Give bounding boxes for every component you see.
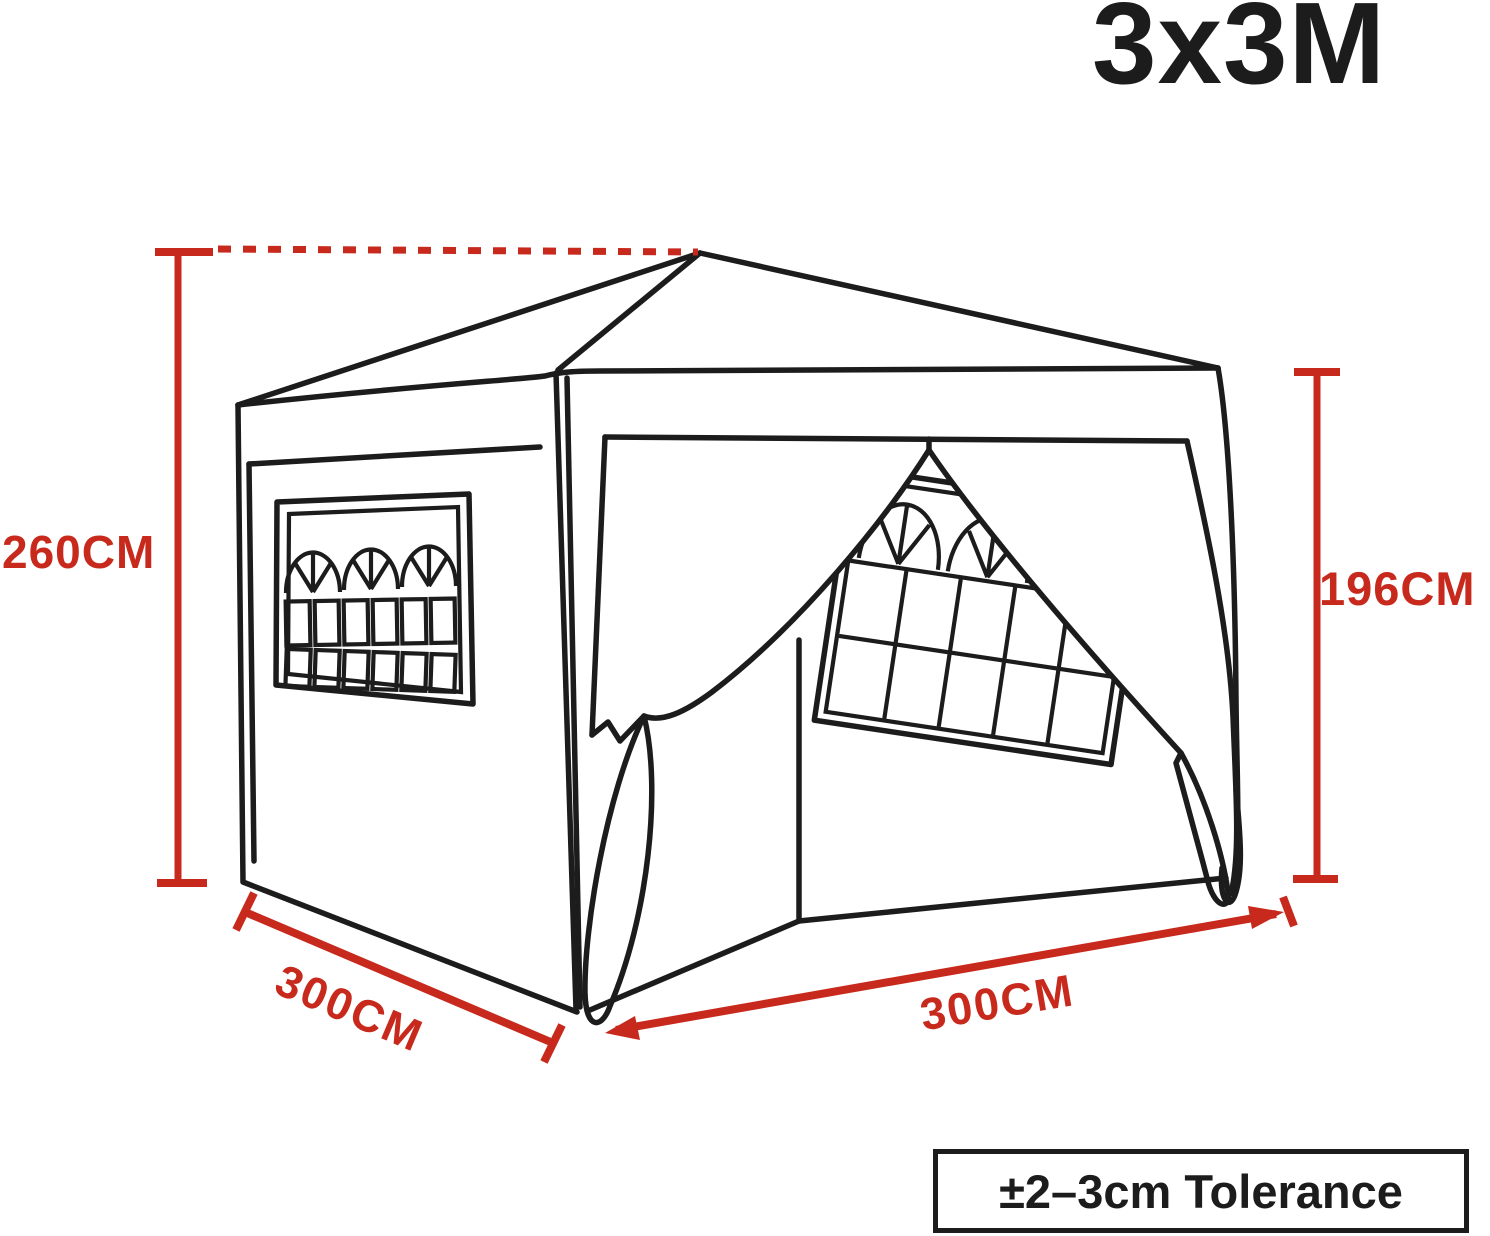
total-height-label: 260CM xyxy=(2,529,155,575)
tolerance-label: ±2–3cm Tolerance xyxy=(999,1168,1403,1215)
window-arches xyxy=(286,546,456,593)
interior xyxy=(590,468,1226,1010)
right-curtain-edge xyxy=(929,450,1181,753)
window-panes-row1 xyxy=(286,599,456,646)
apex-extension-dotted-line xyxy=(218,249,698,252)
left-curtain-edge xyxy=(644,450,929,718)
height-260-line xyxy=(155,252,213,883)
gazebo-outline xyxy=(238,253,1240,1023)
side-height-label: 196CM xyxy=(1319,565,1476,612)
tolerance-box: ±2–3cm Tolerance xyxy=(933,1149,1469,1233)
left-curtain-drape xyxy=(585,716,652,1023)
size-title: 3x3M xyxy=(1092,0,1386,101)
window-panes-row2 xyxy=(285,649,455,692)
left-wall-window xyxy=(276,494,473,704)
diagram-canvas xyxy=(0,0,1490,1236)
roof xyxy=(238,253,1238,894)
height-196-line xyxy=(1293,372,1340,879)
interior-back-window xyxy=(814,468,1148,765)
left-wall xyxy=(238,373,580,1012)
gazebo-dimension-diagram: 3x3M 260CM 196CM 300CM 300CM ±2–3cm Tole… xyxy=(0,0,1490,1236)
